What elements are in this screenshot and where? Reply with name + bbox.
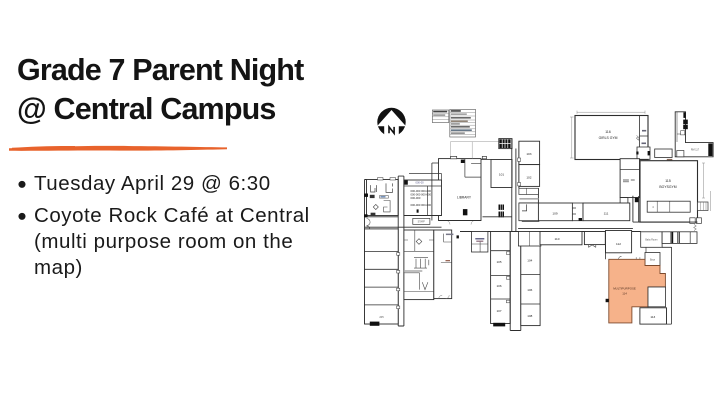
- svg-text:LIBRARY: LIBRARY: [457, 196, 472, 200]
- svg-text:116: 116: [605, 130, 611, 134]
- svg-text:108: 108: [527, 314, 532, 318]
- svg-text:103: 103: [526, 152, 531, 156]
- svg-text:Boys: Boys: [650, 259, 656, 261]
- svg-text:MULTIPURPOSE: MULTIPURPOSE: [613, 287, 636, 291]
- svg-text:BOYSGYM: BOYSGYM: [659, 185, 676, 189]
- svg-text:Baby Room: Baby Room: [645, 239, 657, 241]
- svg-text:114: 114: [622, 291, 627, 295]
- svg-text:GIRLS GYM: GIRLS GYM: [599, 136, 618, 140]
- svg-text:107: 107: [496, 309, 501, 313]
- svg-text:104: 104: [527, 259, 532, 263]
- svg-text:110: 110: [555, 237, 560, 241]
- svg-text:RM 117: RM 117: [691, 149, 700, 152]
- svg-text:000-000: 000-000: [411, 196, 421, 200]
- svg-text:109: 109: [552, 212, 557, 216]
- svg-text:105: 105: [496, 260, 501, 264]
- svg-text:000-000 000-000: 000-000 000-000: [411, 192, 432, 196]
- svg-text:205: 205: [379, 315, 384, 319]
- svg-text:000-000 000-000: 000-000 000-000: [411, 203, 432, 207]
- svg-text:106: 106: [496, 284, 501, 288]
- svg-text:115: 115: [665, 179, 671, 183]
- svg-text:STAFF: STAFF: [418, 221, 426, 224]
- svg-text:000-00: 000-00: [416, 181, 425, 185]
- svg-text:112: 112: [616, 242, 621, 246]
- svg-text:106: 106: [527, 288, 532, 292]
- svg-text:111: 111: [604, 212, 609, 216]
- svg-text:113: 113: [650, 315, 655, 319]
- svg-text:000-000 000-000: 000-000 000-000: [411, 189, 432, 193]
- svg-text:102: 102: [526, 176, 531, 180]
- svg-text:101: 101: [499, 173, 504, 177]
